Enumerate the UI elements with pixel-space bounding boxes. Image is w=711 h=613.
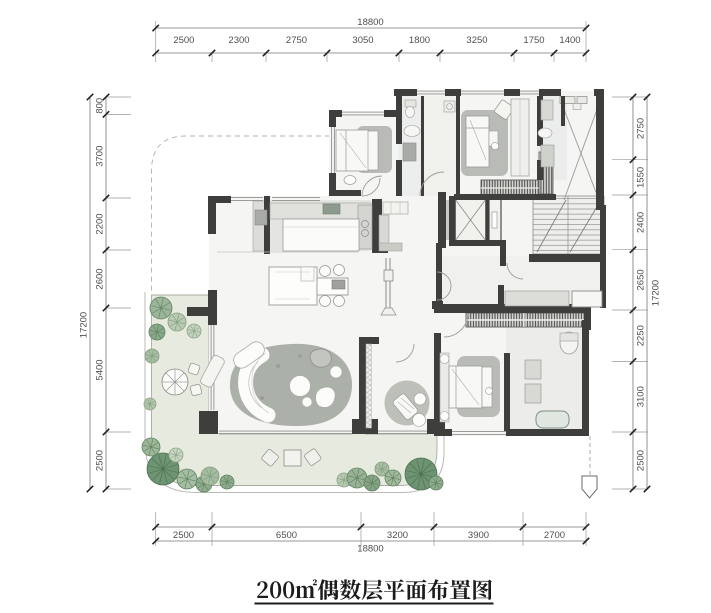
svg-text:2750: 2750: [286, 35, 307, 46]
svg-text:3700: 3700: [95, 146, 106, 167]
svg-text:3900: 3900: [468, 530, 489, 541]
svg-text:3200: 3200: [387, 530, 408, 541]
svg-text:18800: 18800: [357, 17, 383, 28]
svg-text:2200: 2200: [95, 213, 106, 234]
svg-text:2700: 2700: [544, 530, 565, 541]
svg-text:800: 800: [95, 98, 106, 114]
svg-text:2650: 2650: [636, 269, 647, 290]
svg-text:5400: 5400: [95, 359, 106, 380]
svg-text:2300: 2300: [228, 35, 249, 46]
svg-text:1750: 1750: [523, 35, 544, 46]
svg-text:2400: 2400: [636, 212, 647, 233]
svg-text:3250: 3250: [466, 35, 487, 46]
svg-text:2500: 2500: [636, 450, 647, 471]
svg-text:1550: 1550: [636, 167, 647, 188]
svg-text:6500: 6500: [276, 530, 297, 541]
svg-text:2750: 2750: [636, 118, 647, 139]
svg-text:1800: 1800: [409, 35, 430, 46]
svg-text:2500: 2500: [173, 530, 194, 541]
svg-text:2600: 2600: [95, 268, 106, 289]
svg-text:18800: 18800: [357, 544, 383, 555]
svg-text:2500: 2500: [95, 450, 106, 471]
svg-text:2250: 2250: [636, 325, 647, 346]
svg-text:17200: 17200: [651, 280, 662, 306]
svg-text:1400: 1400: [559, 35, 580, 46]
svg-text:17200: 17200: [79, 312, 90, 338]
svg-text:3100: 3100: [636, 386, 647, 407]
svg-text:3050: 3050: [352, 35, 373, 46]
svg-text:2500: 2500: [173, 35, 194, 46]
